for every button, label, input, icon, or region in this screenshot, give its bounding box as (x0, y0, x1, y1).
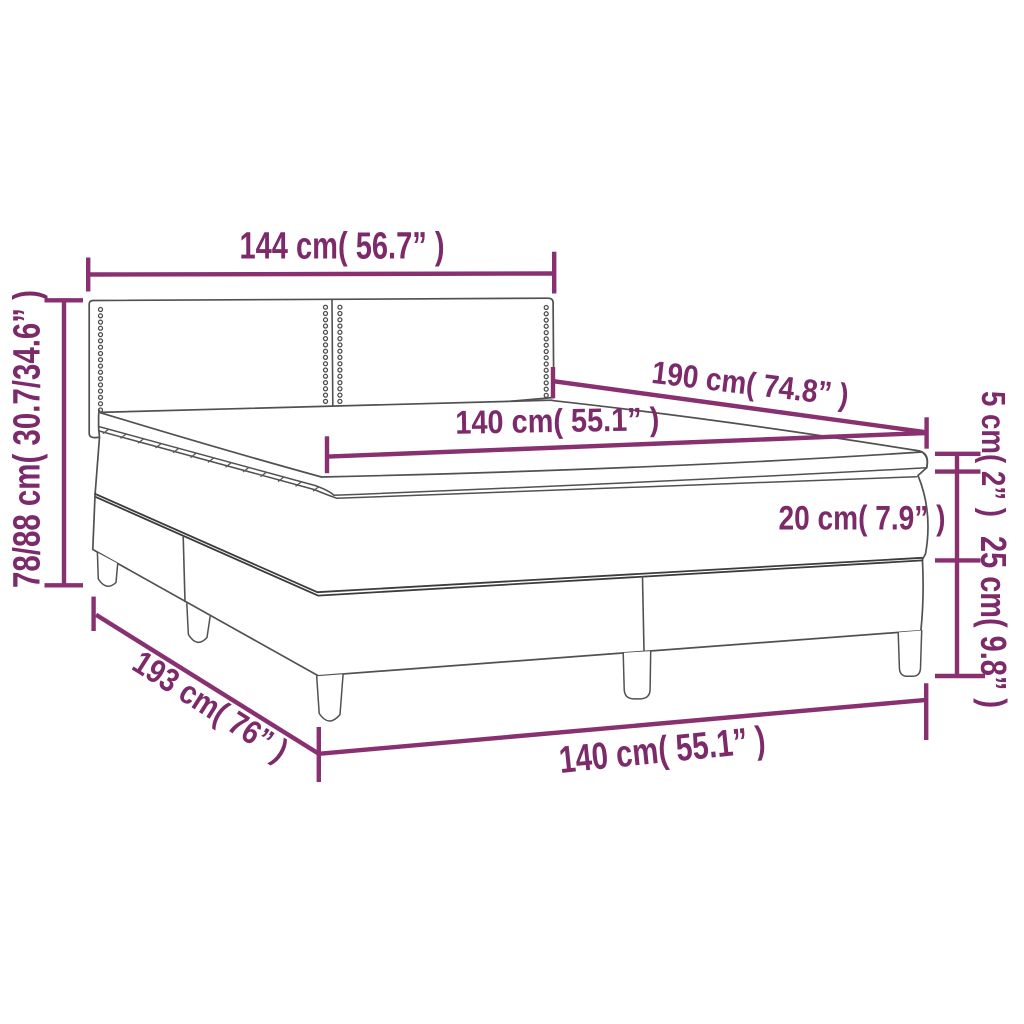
svg-text:144 cm( 56.7” ): 144 cm( 56.7” ) (240, 226, 445, 268)
svg-text:5 cm( 2” ): 5 cm( 2” ) (975, 391, 1012, 517)
svg-text:20 cm( 7.9” ): 20 cm( 7.9” ) (779, 500, 946, 538)
svg-text:140 cm( 55.1” ): 140 cm( 55.1” ) (455, 400, 660, 441)
svg-text:25 cm( 9.8” ): 25 cm( 9.8” ) (973, 536, 1014, 708)
svg-text:78/88 cm( 30.7/34.6” ): 78/88 cm( 30.7/34.6” ) (7, 290, 49, 588)
